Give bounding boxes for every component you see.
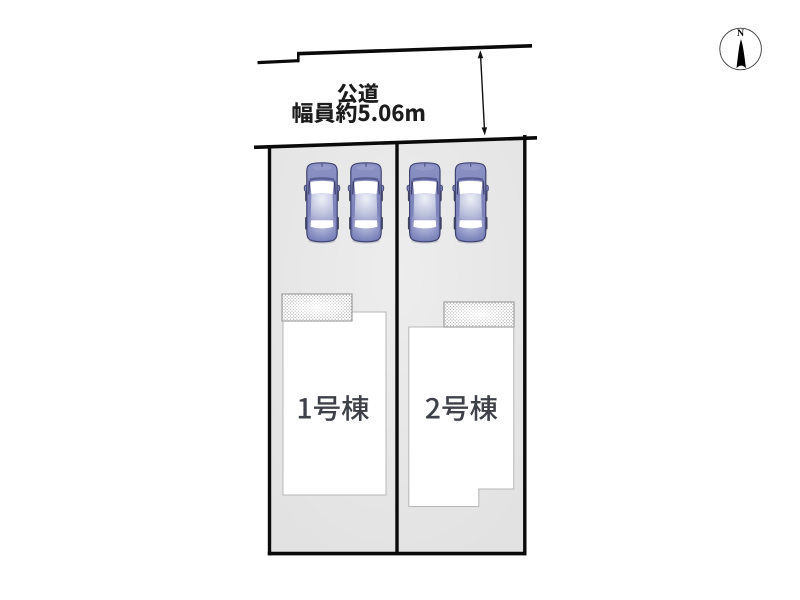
svg-text:N: N: [737, 28, 744, 39]
